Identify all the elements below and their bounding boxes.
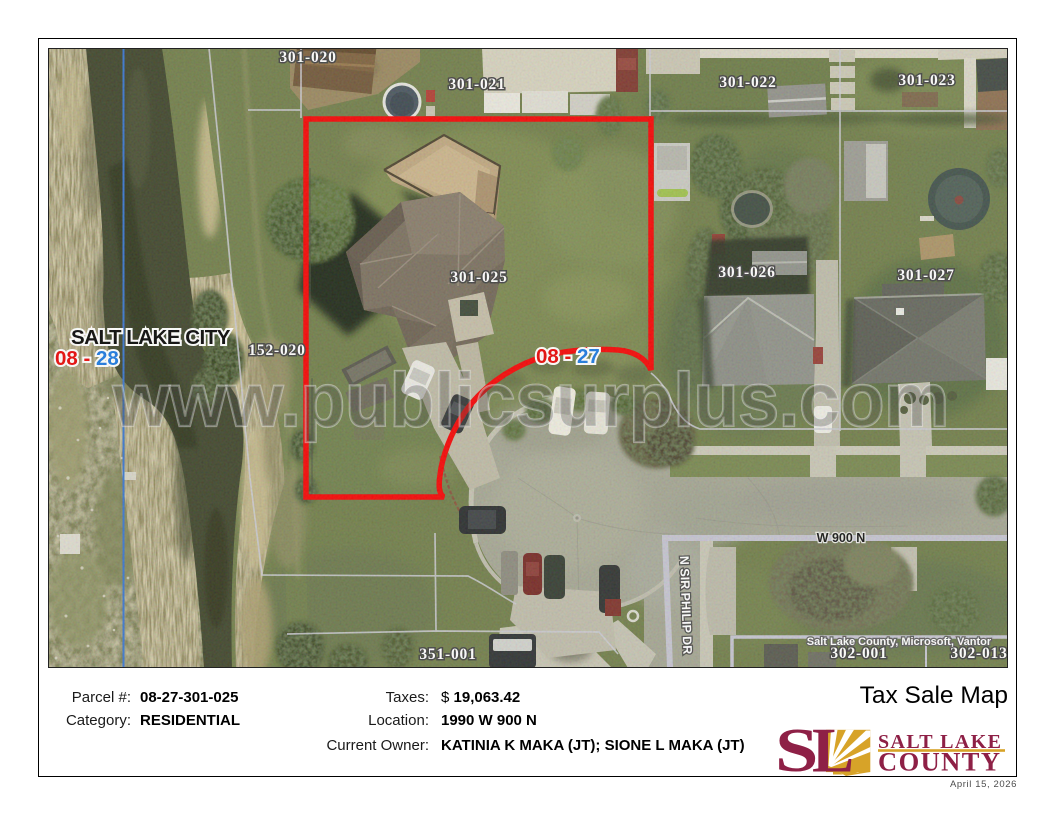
svg-text:L: L xyxy=(812,726,854,780)
svg-text:COUNTY: COUNTY xyxy=(878,747,1002,777)
